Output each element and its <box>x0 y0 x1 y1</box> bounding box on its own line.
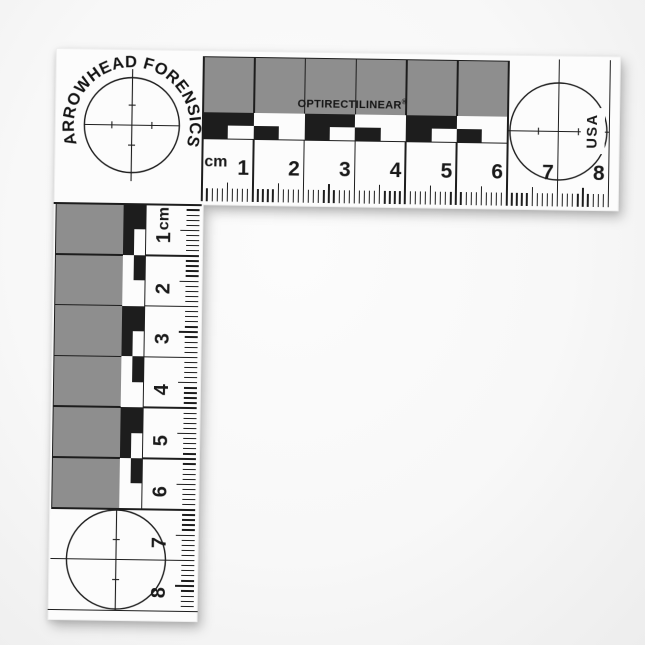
checker-cell <box>431 129 457 142</box>
mm-tick-horizontal-arm <box>475 192 476 205</box>
checker-cell <box>133 280 145 306</box>
mm-tick-horizontal-arm <box>369 191 370 204</box>
mm-tick-vertical-arm <box>187 214 200 215</box>
mm-tick-vertical-arm <box>183 468 196 469</box>
mm-tick-horizontal-arm <box>359 191 360 204</box>
checker-cell <box>228 126 254 139</box>
mm-tick-vertical-arm <box>177 433 196 435</box>
mm-tick-vertical-arm <box>184 362 197 363</box>
mm-tick-vertical-arm <box>185 347 198 348</box>
mm-tick-vertical-arm <box>183 423 196 424</box>
mm-tick-vertical-arm <box>184 372 197 373</box>
mm-tick-vertical-arm <box>178 382 197 384</box>
mm-tick-vertical-arm <box>184 397 197 398</box>
mm-tick-vertical-arm <box>185 326 198 327</box>
mm-tick-horizontal-arm <box>237 189 238 202</box>
checker-cell <box>203 125 229 138</box>
mm-tick-horizontal-arm <box>425 191 426 204</box>
mm-tick-horizontal-arm <box>420 191 421 204</box>
mm-tick-horizontal-arm <box>409 191 410 204</box>
target-circle-bottom <box>48 488 200 622</box>
checker-cell <box>431 116 457 129</box>
checker-cell <box>134 230 146 256</box>
mm-tick-vertical-arm <box>185 316 198 317</box>
mm-tick-vertical-arm <box>184 413 197 414</box>
unit-label-horizontal: cm <box>204 154 227 170</box>
mm-tick-horizontal-arm <box>226 183 228 202</box>
mm-tick-vertical-arm <box>184 377 197 378</box>
mm-tick-horizontal-arm <box>211 188 212 201</box>
mm-tick-vertical-arm <box>185 321 198 322</box>
mm-tick-vertical-arm <box>185 311 198 312</box>
mm-tick-vertical-arm <box>180 280 199 282</box>
checker-cell <box>121 356 133 382</box>
checker-cell <box>123 255 135 281</box>
mm-tick-horizontal-arm <box>247 189 248 202</box>
mm-tick-vertical-arm <box>186 220 199 221</box>
mm-tick-vertical-arm <box>184 402 197 403</box>
mm-tick-vertical-arm <box>186 225 199 226</box>
cm-number-horizontal: 5 <box>421 160 452 181</box>
mm-tick-horizontal-arm <box>293 190 294 203</box>
mm-tick-horizontal-arm <box>491 192 492 205</box>
mm-tick-horizontal-arm <box>379 185 381 204</box>
cm-number-vertical: 4 <box>149 377 175 403</box>
mm-tick-horizontal-arm <box>430 186 432 205</box>
checker-cell <box>254 113 280 126</box>
checker-cell <box>279 126 305 139</box>
checker-cell <box>133 331 145 357</box>
mm-tick-vertical-arm <box>186 250 199 251</box>
mm-tick-vertical-arm <box>186 275 199 276</box>
mm-tick-vertical-arm <box>186 270 199 271</box>
checker-cell <box>279 113 305 126</box>
cm-number-horizontal: 3 <box>319 159 350 180</box>
mm-tick-horizontal-arm <box>323 190 324 203</box>
mm-tick-horizontal-arm <box>450 192 451 205</box>
mm-tick-vertical-arm <box>186 260 199 261</box>
mm-tick-horizontal-arm <box>435 192 436 205</box>
checker-cell <box>120 433 132 459</box>
mm-tick-horizontal-arm <box>216 188 217 201</box>
mm-tick-horizontal-arm <box>496 193 497 206</box>
mm-tick-vertical-arm <box>183 428 196 429</box>
checker-cell <box>253 126 279 139</box>
checker-cell <box>330 127 356 140</box>
mm-tick-horizontal-arm <box>470 192 471 205</box>
checker-cell <box>120 458 132 484</box>
checker-cell <box>406 115 432 128</box>
mm-tick-vertical-arm <box>179 331 198 333</box>
crosshair-vertical-line <box>115 509 117 611</box>
mm-tick-vertical-arm <box>184 392 197 393</box>
cm-number-horizontal: 6 <box>472 161 503 182</box>
mm-tick-vertical-arm <box>186 240 199 241</box>
checker-cell <box>131 407 143 433</box>
mm-tick-horizontal-arm <box>267 189 268 202</box>
mm-tick-horizontal-arm <box>298 190 299 203</box>
mm-tick-horizontal-arm <box>364 191 365 204</box>
mm-tick-vertical-arm <box>185 291 198 292</box>
mm-tick-vertical-arm <box>184 418 197 419</box>
checker-cell <box>131 458 143 484</box>
mm-tick-horizontal-arm <box>262 189 263 202</box>
mm-tick-vertical-arm <box>186 245 199 246</box>
mm-tick-horizontal-arm <box>287 189 288 202</box>
unit-label-vertical: cm <box>152 200 177 236</box>
mm-tick-vertical-arm <box>183 479 196 480</box>
mm-tick-vertical-arm <box>183 448 196 449</box>
mm-tick-horizontal-arm <box>440 192 441 205</box>
checker-cell <box>122 306 134 332</box>
mm-tick-horizontal-arm <box>343 190 344 203</box>
mm-tick-vertical-arm <box>185 341 198 342</box>
mm-tick-horizontal-arm <box>272 189 273 202</box>
mm-tick-vertical-arm <box>187 209 200 210</box>
mm-tick-vertical-arm <box>183 463 196 464</box>
checker-cell <box>123 204 135 230</box>
mm-tick-horizontal-arm <box>232 189 233 202</box>
mm-tick-horizontal-arm <box>277 183 279 202</box>
mm-tick-vertical-arm <box>185 286 198 287</box>
checker-cell <box>121 382 133 408</box>
checker-cell <box>120 407 132 433</box>
cm-number-horizontal: 2 <box>269 158 300 179</box>
checker-cell <box>304 127 330 140</box>
mm-tick-vertical-arm <box>177 484 196 486</box>
mm-tick-horizontal-arm <box>313 190 314 203</box>
mm-tick-vertical-arm <box>183 443 196 444</box>
photo-background: 1122334455667788 ARROWHEAD FORENSICS <box>0 0 645 645</box>
mm-tick-horizontal-arm <box>308 190 309 203</box>
mm-tick-vertical-arm <box>183 453 196 454</box>
checker-cell <box>406 128 432 141</box>
mm-tick-horizontal-arm <box>328 184 330 203</box>
mm-tick-vertical-arm <box>185 336 198 337</box>
mm-tick-vertical-arm <box>185 301 198 302</box>
mm-tick-horizontal-arm <box>333 190 334 203</box>
mm-tick-horizontal-arm <box>242 189 243 202</box>
checker-cell <box>304 114 330 127</box>
registered-trademark-symbol: ® <box>402 99 408 106</box>
checker-cell <box>132 357 144 383</box>
country-label: USA <box>580 108 605 154</box>
mm-tick-horizontal-arm <box>445 192 446 205</box>
cm-number-horizontal: 4 <box>370 160 401 181</box>
mm-tick-horizontal-arm <box>257 189 258 202</box>
checker-cell <box>121 331 133 357</box>
checker-cell <box>131 433 143 459</box>
checker-cell <box>228 113 254 126</box>
checker-cell <box>203 112 229 125</box>
checker-cell <box>122 280 134 306</box>
mm-tick-horizontal-arm <box>384 191 385 204</box>
mm-tick-horizontal-arm <box>348 190 349 203</box>
mm-tick-vertical-arm <box>185 296 198 297</box>
mm-tick-horizontal-arm <box>394 191 395 204</box>
mm-tick-vertical-arm <box>183 438 196 439</box>
checker-cell <box>381 115 407 128</box>
mm-tick-horizontal-arm <box>480 186 482 205</box>
mm-tick-horizontal-arm <box>318 190 319 203</box>
mm-tick-horizontal-arm <box>414 191 415 204</box>
checker-cell <box>135 204 147 230</box>
mm-tick-horizontal-arm <box>374 191 375 204</box>
mm-tick-horizontal-arm <box>338 190 339 203</box>
mm-tick-horizontal-arm <box>389 191 390 204</box>
checker-cell <box>380 128 406 141</box>
cm-number-vertical: 5 <box>148 427 174 453</box>
mm-tick-horizontal-arm <box>465 192 466 205</box>
mm-tick-horizontal-arm <box>460 192 461 205</box>
mm-tick-horizontal-arm <box>486 192 487 205</box>
cm-number-vertical: 3 <box>150 326 176 352</box>
target-circle-topleft: ARROWHEAD FORENSICS <box>54 48 204 200</box>
checker-cell <box>355 114 381 127</box>
mm-tick-horizontal-arm <box>399 191 400 204</box>
checker-cell <box>132 382 144 408</box>
mm-tick-vertical-arm <box>184 352 197 353</box>
mm-tick-horizontal-arm <box>206 188 207 201</box>
checker-cell <box>457 129 483 142</box>
mm-tick-vertical-arm <box>180 230 199 232</box>
mm-tick-vertical-arm <box>186 235 199 236</box>
mm-tick-vertical-arm <box>184 387 197 388</box>
mm-tick-vertical-arm <box>183 474 196 475</box>
mm-tick-horizontal-arm <box>282 189 283 202</box>
checker-cell <box>457 116 483 129</box>
product-name-label: OPTIRECTILINEAR® <box>283 97 407 111</box>
checker-cell <box>330 114 356 127</box>
checker-cell <box>355 127 381 140</box>
mm-tick-vertical-arm <box>186 265 199 266</box>
checker-cell <box>133 306 145 332</box>
checker-cell <box>123 229 135 255</box>
mm-tick-horizontal-arm <box>221 188 222 201</box>
checker-cell <box>134 255 146 281</box>
cm-number-vertical: 2 <box>150 275 176 301</box>
mm-tick-vertical-arm <box>184 367 197 368</box>
